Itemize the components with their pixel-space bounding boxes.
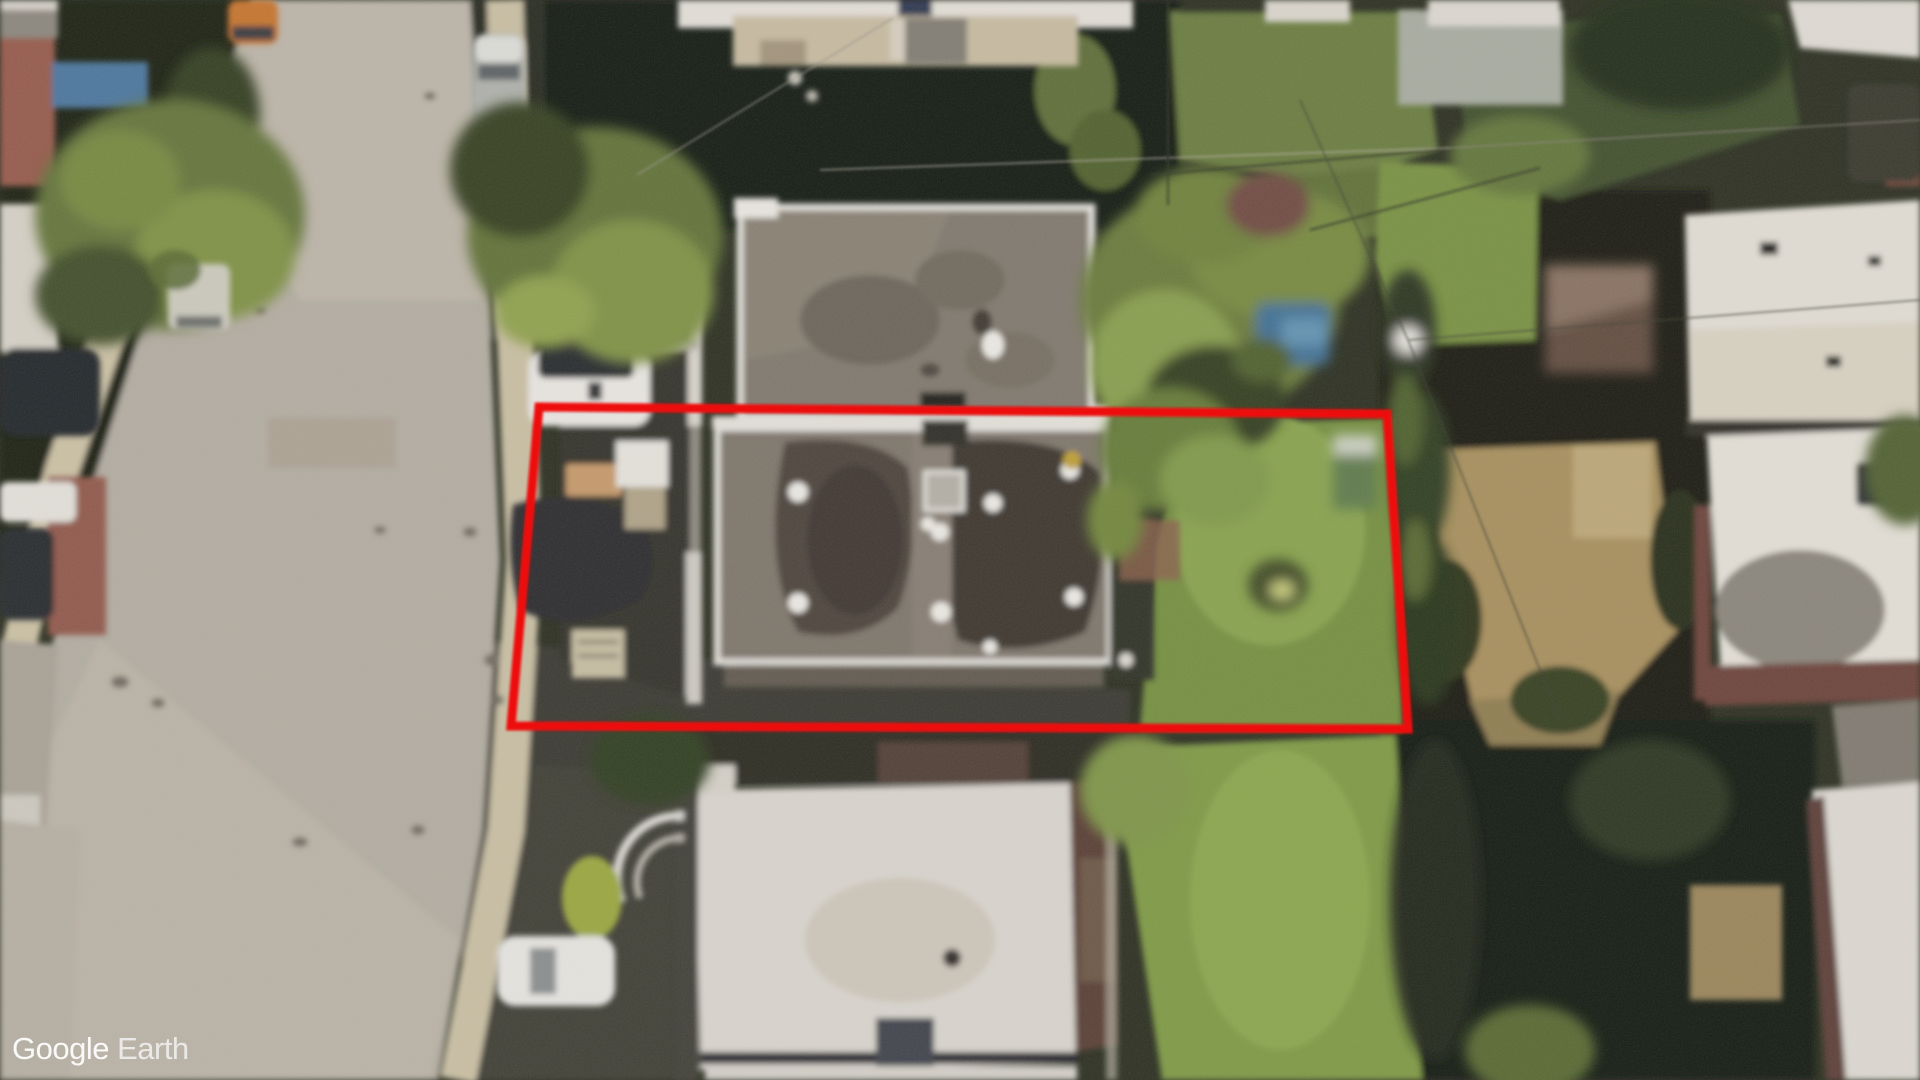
- svg-text:Google Earth: Google Earth: [12, 1031, 189, 1066]
